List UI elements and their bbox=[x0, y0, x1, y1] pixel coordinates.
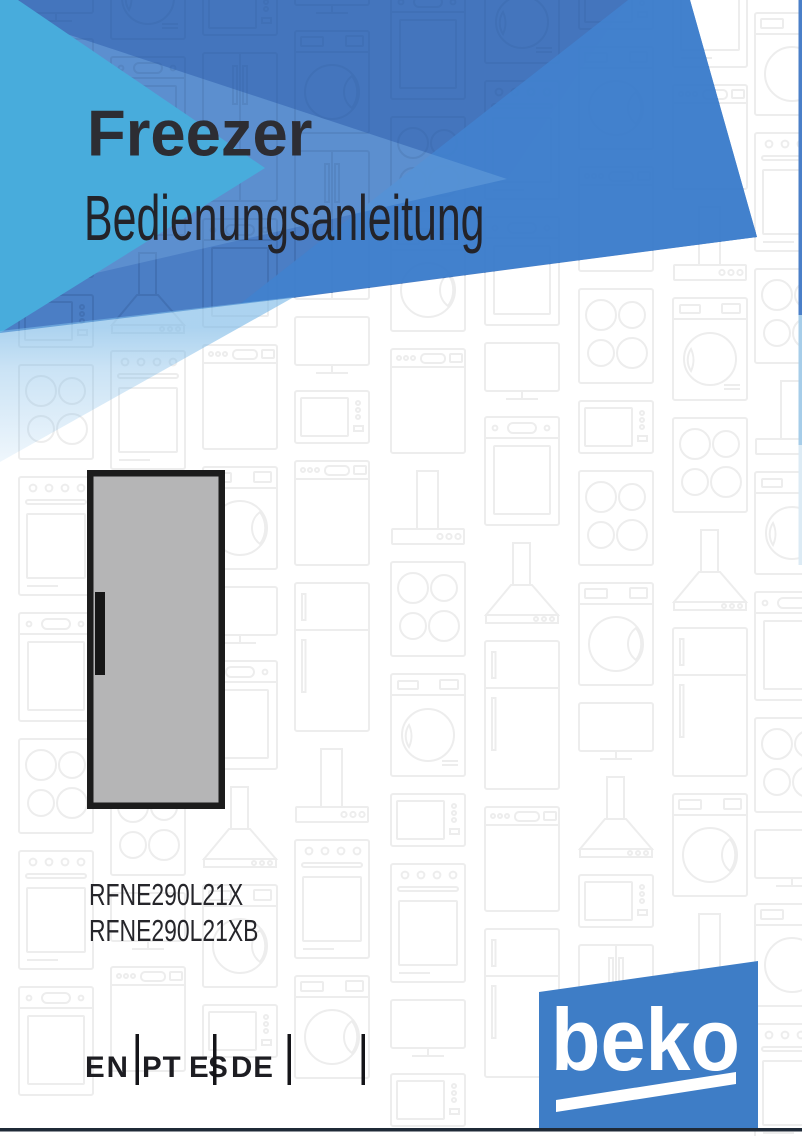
svg-text:PT: PT bbox=[142, 1051, 182, 1084]
svg-text:Bedienungsanleitung: Bedienungsanleitung bbox=[84, 182, 485, 254]
svg-text:RFNE290L21XB: RFNE290L21XB bbox=[89, 913, 258, 948]
svg-text:ES: ES bbox=[189, 1051, 227, 1084]
svg-text:RFNE290L21X: RFNE290L21X bbox=[89, 877, 243, 912]
svg-text:EN: EN bbox=[85, 1051, 130, 1084]
svg-text:DE: DE bbox=[231, 1051, 274, 1084]
svg-text:Freezer: Freezer bbox=[87, 97, 312, 170]
svg-text:beko: beko bbox=[551, 990, 740, 1089]
